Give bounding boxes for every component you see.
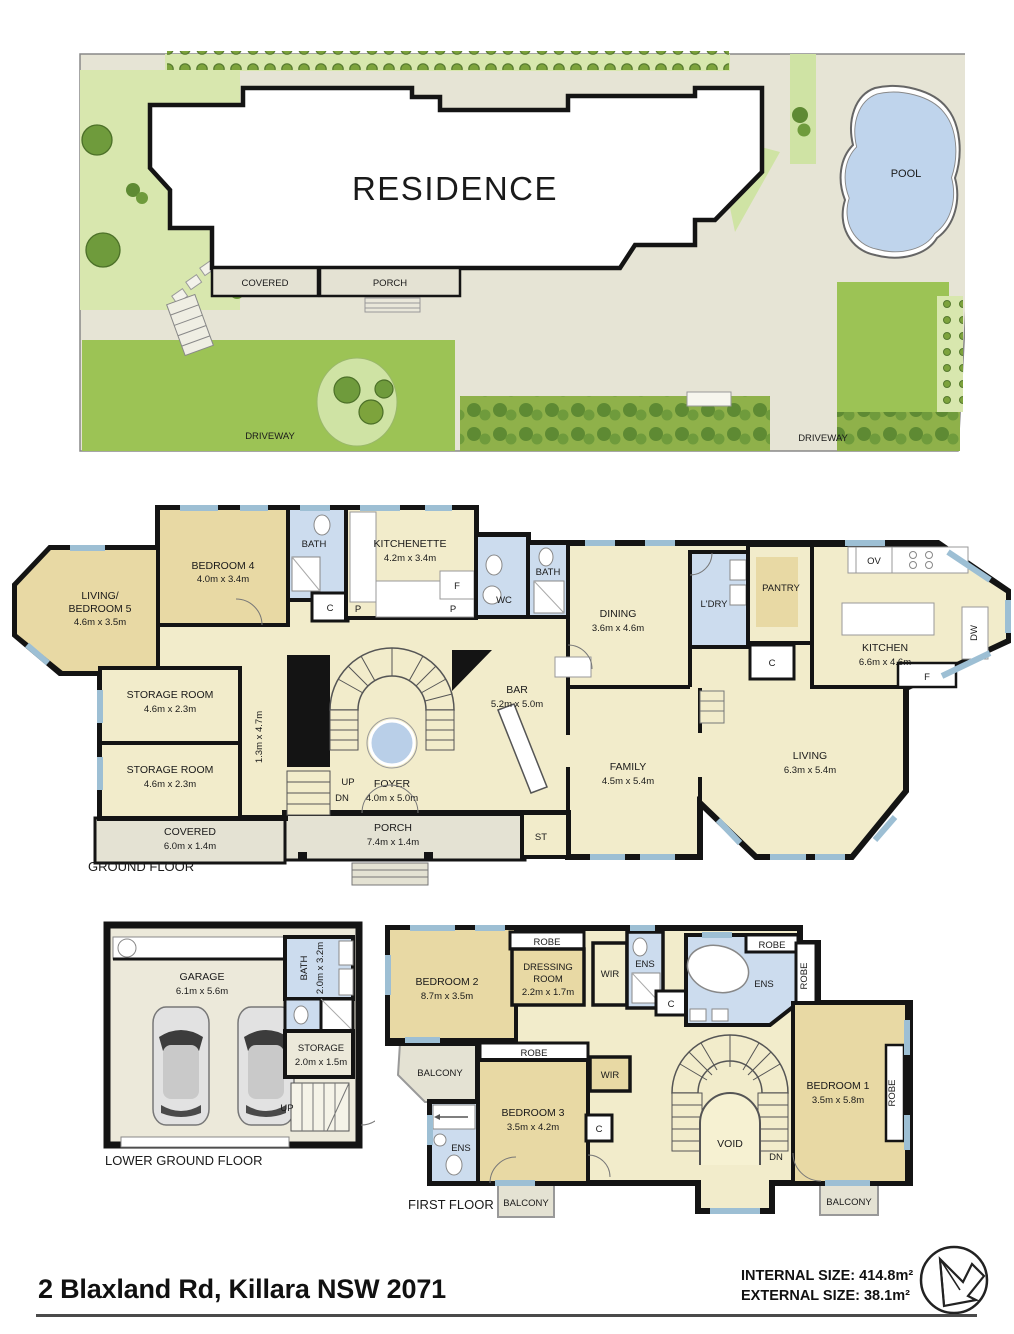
grass-bottom-right xyxy=(837,282,949,412)
room-label: BAR xyxy=(506,684,528,696)
robe-label: ROBE xyxy=(887,1080,898,1107)
cupboard-c1: C xyxy=(312,593,348,621)
room-dim: 3.5m x 5.8m xyxy=(812,1095,864,1106)
covered-dim: 6.0m x 1.4m xyxy=(164,841,216,852)
room-bedroom1: BEDROOM 1 3.5m x 5.8m ROBE xyxy=(793,1003,907,1183)
garden-island xyxy=(317,358,397,446)
room-label: LIVING/ xyxy=(81,590,118,602)
balcony-bottom-right: BALCONY xyxy=(820,1183,878,1215)
balcony-bottom-center: BALCONY xyxy=(498,1183,554,1217)
label-st: ST xyxy=(535,832,547,843)
room-dim: 6.6m x 4.6m xyxy=(859,657,911,668)
room-bedroom4: BEDROOM 4 4.0m x 3.4m xyxy=(158,508,288,625)
tree-row-icon xyxy=(167,51,729,70)
room-label: BATH xyxy=(536,567,561,578)
label-dn: DN xyxy=(335,793,349,804)
label-c: C xyxy=(596,1124,603,1135)
room-label: BEDROOM 4 xyxy=(191,560,254,572)
cupboard-c2: C xyxy=(750,645,794,679)
room-bedroom2: BEDROOM 2 8.7m x 3.5m xyxy=(388,928,516,1040)
robe-label: ROBE xyxy=(534,937,561,948)
palm-icon xyxy=(136,192,148,204)
footer-divider xyxy=(36,1314,977,1317)
room-label: FAMILY xyxy=(610,761,647,773)
tree-icon xyxy=(82,125,112,155)
room-label: ROOM xyxy=(533,974,563,985)
dot-trees-icon xyxy=(937,296,963,412)
void-label: VOID xyxy=(717,1138,743,1150)
robe-bed3: ROBE xyxy=(480,1043,588,1060)
label-c: C xyxy=(327,603,334,614)
label-p: P xyxy=(355,604,361,615)
room-wir1: WIR xyxy=(593,943,627,1005)
room-label: DINING xyxy=(600,608,637,620)
external-size: EXTERNAL SIZE: 38.1m² xyxy=(741,1286,913,1306)
first-floor-title: FIRST FLOOR xyxy=(408,1197,494,1212)
room-dim: 6.1m x 5.6m xyxy=(176,986,228,997)
hedge-shrubs-icon xyxy=(837,412,960,451)
room-bath1: BATH xyxy=(288,508,346,600)
room-wir2: WIR xyxy=(590,1057,630,1091)
room-storage2: STORAGE ROOM 4.6m x 2.3m xyxy=(100,743,240,818)
tree-icon xyxy=(359,400,383,424)
room-label: PANTRY xyxy=(762,583,800,594)
garage-door xyxy=(121,1137,289,1147)
ground-floor-plan: LIVING/ BEDROOM 5 4.6m x 3.5m BEDROOM 4 … xyxy=(0,495,1014,895)
room-label: STORAGE ROOM xyxy=(127,764,214,776)
tree-icon xyxy=(86,233,120,267)
pool: POOL xyxy=(841,86,960,258)
room-dim: 4.6m x 2.3m xyxy=(144,779,196,790)
room-label: BEDROOM 5 xyxy=(68,603,131,615)
room-label: ENS xyxy=(754,979,774,990)
room-label: BATH xyxy=(302,539,327,550)
cupboard-c2-first: C xyxy=(586,1115,612,1141)
room-label: BEDROOM 3 xyxy=(501,1107,564,1119)
room-dim: 6.3m x 5.4m xyxy=(784,765,836,776)
room-wc: WC xyxy=(476,535,528,617)
room-bath2: BATH xyxy=(528,543,568,617)
balcony-label: BALCONY xyxy=(417,1068,463,1079)
robe-label: ROBE xyxy=(799,963,810,990)
room-lower-bath: BATH 2.0m x 3.2m xyxy=(285,937,353,999)
label-up: UP xyxy=(280,1103,293,1114)
room-label: BEDROOM 2 xyxy=(415,976,478,988)
label-f: F xyxy=(454,581,460,592)
room-dim: 4.5m x 5.4m xyxy=(602,776,654,787)
robe-label: ROBE xyxy=(521,1048,548,1059)
site-covered-label: COVERED xyxy=(242,278,289,289)
lower-ground-plan: GARAGE 6.1m x 5.6m BATH 2.0m x 3.2m STOR… xyxy=(95,915,375,1175)
room-label: GARAGE xyxy=(180,971,225,983)
room-label: BEDROOM 1 xyxy=(806,1080,869,1092)
room-dressing: DRESSING ROOM 2.2m x 1.7m xyxy=(512,949,584,1005)
floor-plan-page: RESIDENCE COVERED PORCH POOL DRIVEWAY DR… xyxy=(0,0,1014,1334)
room-dim: 3.6m x 4.6m xyxy=(592,623,644,634)
robe-vertical1: ROBE xyxy=(796,943,816,1009)
room-label: ENS xyxy=(635,959,655,970)
room-bedroom3: BEDROOM 3 3.5m x 4.2m xyxy=(478,1060,588,1183)
tree-icon xyxy=(334,377,360,403)
porch-dim: 7.4m x 1.4m xyxy=(367,837,419,848)
room-dim: 8.7m x 3.5m xyxy=(421,991,473,1002)
tree-icon xyxy=(375,380,393,398)
room-st: ST xyxy=(522,813,568,857)
site-porch-label: PORCH xyxy=(373,278,407,289)
room-label: LIVING xyxy=(793,750,827,762)
label-c: C xyxy=(769,658,776,669)
porch-label: PORCH xyxy=(374,822,412,834)
robe-top1: ROBE xyxy=(510,932,584,949)
room-label: BATH xyxy=(299,956,310,981)
internal-size: INTERNAL SIZE: 414.8m² xyxy=(741,1266,913,1286)
room-dim: 4.2m x 3.4m xyxy=(384,553,436,564)
room-laundry: L'DRY xyxy=(690,552,748,647)
room-label: WIR xyxy=(601,1070,620,1081)
room-dim: 5.2m x 5.0m xyxy=(491,699,543,710)
room-label: STORAGE xyxy=(298,1043,344,1054)
room-storage1: STORAGE ROOM 4.6m x 2.3m xyxy=(100,668,240,743)
ground-floor-title: GROUND FLOOR xyxy=(88,859,194,874)
room-lower-storage: STORAGE 2.0m x 1.5m xyxy=(285,1031,353,1077)
room-kitchenette: KITCHENETTE 4.2m x 3.4m F P P xyxy=(346,508,476,618)
palm-icon xyxy=(792,107,808,123)
size-summary: INTERNAL SIZE: 414.8m² EXTERNAL SIZE: 38… xyxy=(741,1266,913,1306)
room-dim: 4.0m x 3.4m xyxy=(197,574,249,585)
driveway-right-label: DRIVEWAY xyxy=(798,433,848,444)
cupboard-c1-first: C xyxy=(656,991,686,1015)
label-f: F xyxy=(924,672,930,683)
room-dim: 2.0m x 3.2m xyxy=(315,942,326,994)
residence-label: RESIDENCE xyxy=(352,170,558,207)
room-label: ENS xyxy=(451,1143,471,1154)
label-p: P xyxy=(450,604,456,615)
balcony-label: BALCONY xyxy=(503,1198,549,1209)
balcony-top-left: BALCONY xyxy=(398,1043,478,1102)
gate xyxy=(687,392,731,406)
room-dim: 2.0m x 1.5m xyxy=(295,1057,347,1068)
room-label: STORAGE ROOM xyxy=(127,689,214,701)
agency-logo xyxy=(916,1242,992,1318)
property-address: 2 Blaxland Rd, Killara NSW 2071 xyxy=(38,1274,446,1305)
balcony-label: BALCONY xyxy=(826,1197,872,1208)
room-label: KITCHENETTE xyxy=(374,538,447,550)
lower-wc xyxy=(285,999,353,1031)
room-ens3: ENS xyxy=(430,1102,478,1183)
palm-icon xyxy=(798,124,811,137)
room-pantry: PANTRY xyxy=(748,545,812,643)
room-label: WIR xyxy=(601,969,620,980)
site-plan: RESIDENCE COVERED PORCH POOL DRIVEWAY DR… xyxy=(75,40,965,465)
hall-dim: 1.3m x 4.7m xyxy=(254,711,265,763)
label-ov: OV xyxy=(867,556,881,567)
robe-top2: ROBE xyxy=(746,935,798,952)
room-dim: 4.6m x 2.3m xyxy=(144,704,196,715)
driveway-left-label: DRIVEWAY xyxy=(245,431,295,442)
room-label: WC xyxy=(496,595,512,606)
label-dn: DN xyxy=(769,1152,783,1163)
first-floor-plan: BALCONY BALCONY BALCONY BEDROOM 2 8.7m x… xyxy=(380,915,980,1235)
column xyxy=(118,939,136,957)
room-dim: 4.6m x 3.5m xyxy=(74,617,126,628)
label-c: C xyxy=(668,999,675,1010)
garage-shelf xyxy=(113,937,285,959)
room-label: KITCHEN xyxy=(862,642,908,654)
robe-label: ROBE xyxy=(759,940,786,951)
room-dim: 4.0m x 5.0m xyxy=(366,793,418,804)
label-up: UP xyxy=(341,777,354,788)
covered-label: COVERED xyxy=(164,826,216,838)
room-dim: 3.5m x 4.2m xyxy=(507,1122,559,1133)
room-dim: 2.2m x 1.7m xyxy=(522,987,574,998)
room-label: DRESSING xyxy=(523,962,573,973)
room-label: FOYER xyxy=(374,778,411,790)
lower-ground-title: LOWER GROUND FLOOR xyxy=(105,1153,262,1168)
room-label: L'DRY xyxy=(701,599,729,610)
label-dw: DW xyxy=(969,625,980,641)
porch-steps xyxy=(365,298,420,312)
pool-label: POOL xyxy=(891,168,922,180)
room-kitchen: OV DW F KITCHEN 6.6m x 4.6m xyxy=(812,545,1008,687)
